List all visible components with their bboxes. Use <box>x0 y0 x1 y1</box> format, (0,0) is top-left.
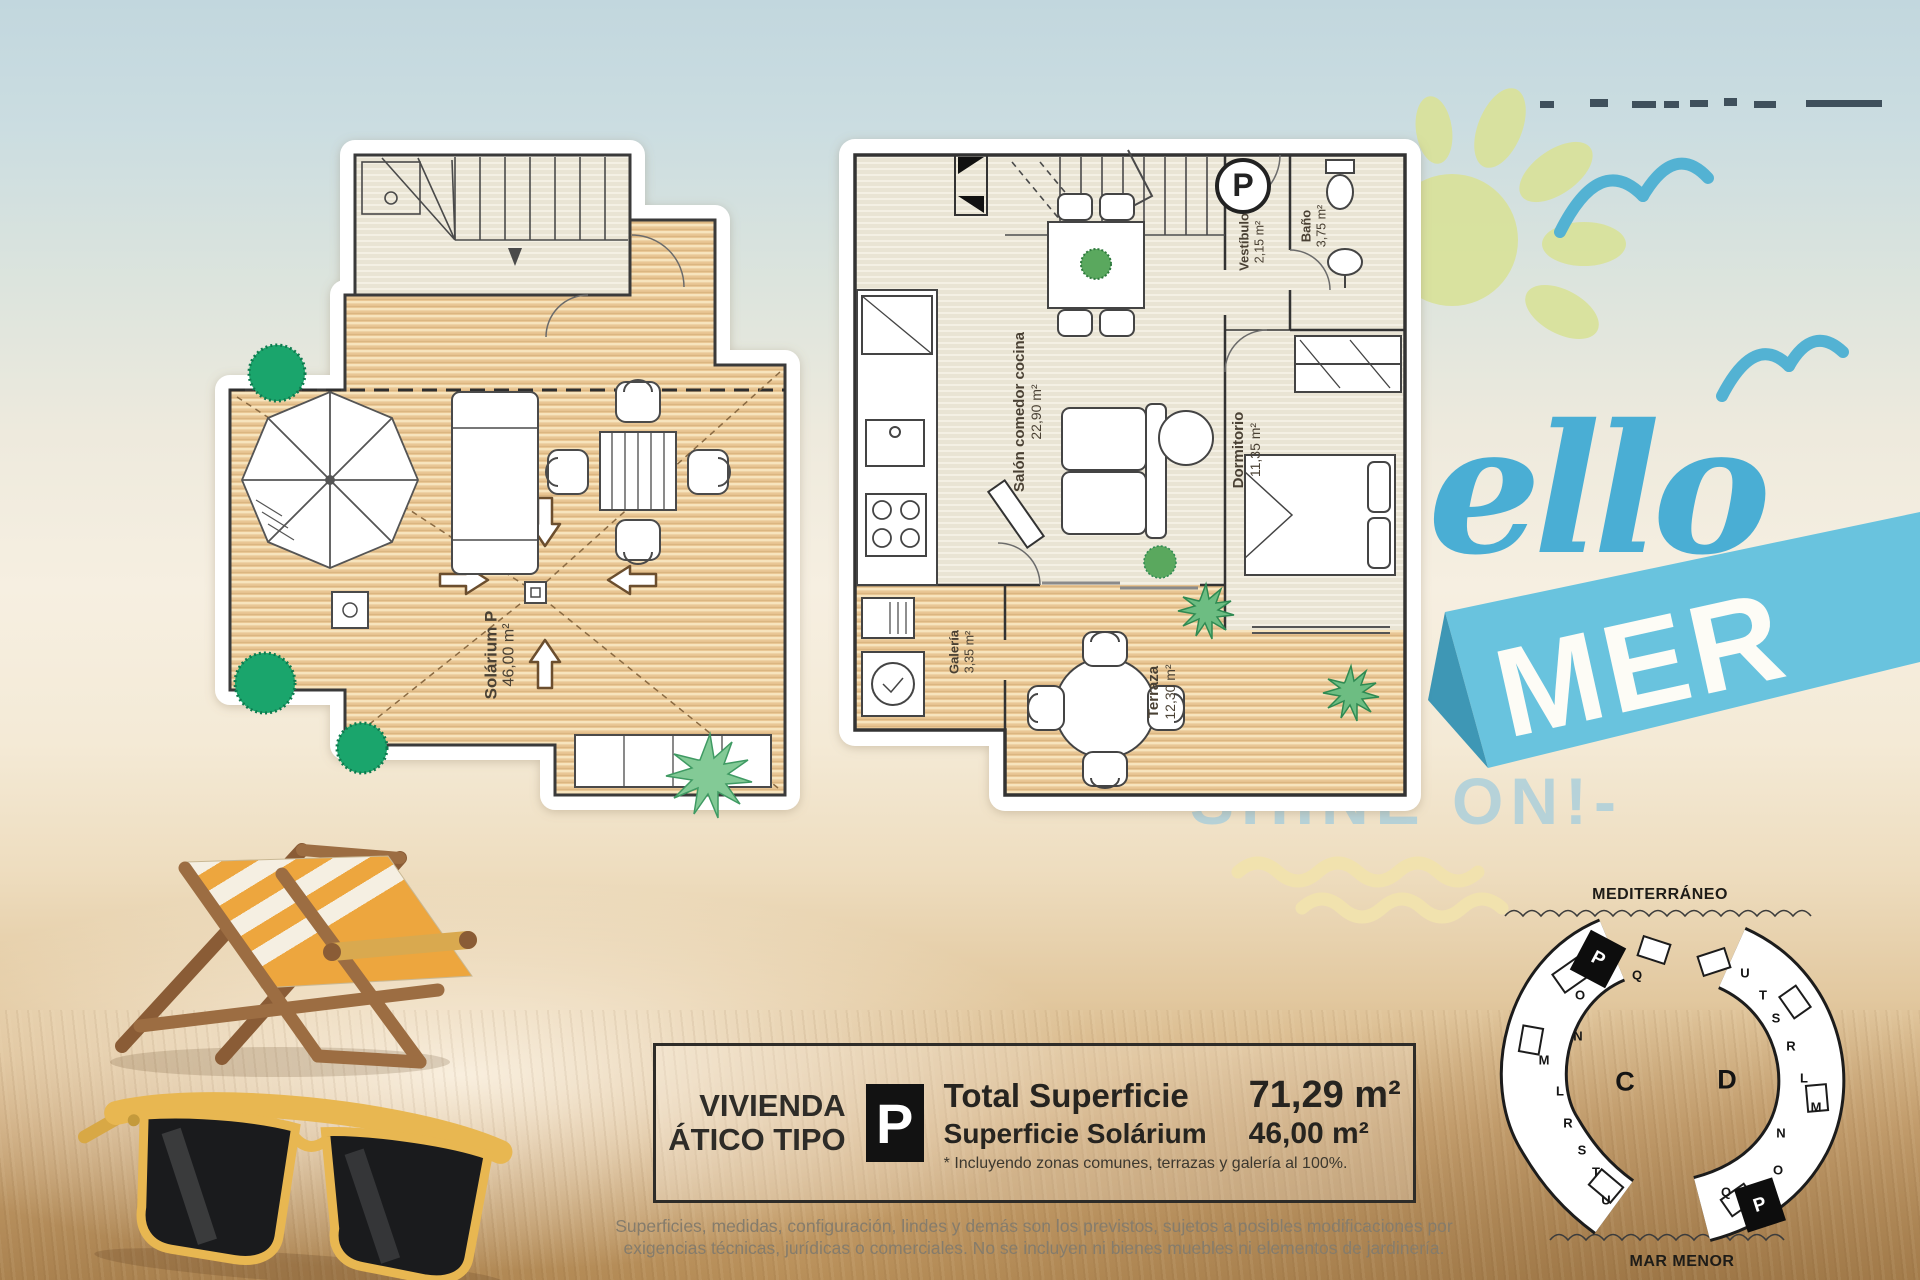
site-unit-c-u: U <box>1601 1193 1610 1208</box>
solarium-surface-label: Superficie Solárium <box>944 1118 1249 1150</box>
site-unit-c-l: L <box>1556 1084 1564 1099</box>
block-d-label: D <box>1717 1065 1737 1096</box>
unit-title: VIVIENDA ÁTICO TIPO <box>668 1089 845 1157</box>
site-unit-d-t: T <box>1759 988 1767 1003</box>
site-unit-d-l: L <box>1800 1071 1808 1086</box>
total-surface-value: 71,29 m² <box>1249 1074 1401 1117</box>
site-unit-d-s: S <box>1772 1011 1781 1026</box>
sunglasses-photo <box>75 1093 514 1280</box>
room-label-solarium: Solárium P 46,00 m² <box>482 611 519 700</box>
room-label-dormitorio: Dormitorio 11,35 m² <box>1231 412 1263 489</box>
solarium-plan-detail <box>230 155 785 818</box>
sun-icon <box>1386 81 1626 350</box>
room-label-vestibulo: Vestíbulo 2,15 m² <box>1238 213 1267 271</box>
site-unit-d-n: N <box>1776 1126 1785 1141</box>
site-unit-d-q: Q <box>1721 1185 1731 1200</box>
logo-remnant-dashes <box>1540 98 1882 108</box>
site-unit-d-m: M <box>1811 1100 1822 1115</box>
site-unit-c-q: Q <box>1632 968 1642 983</box>
site-unit-c-n: N <box>1573 1029 1582 1044</box>
legal-disclaimer: Superficies, medidas, configuración, lin… <box>534 1216 1534 1260</box>
block-c-label: C <box>1615 1067 1635 1098</box>
room-label-salon: Salón comedor cocina 22,90 m² <box>1012 332 1044 492</box>
site-unit-c-t: T <box>1592 1165 1600 1180</box>
room-label-bano: Baño 3,75 m² <box>1300 205 1329 247</box>
site-unit-c-m: M <box>1539 1053 1550 1068</box>
surface-note: * Incluyendo zonas comunes, terrazas y g… <box>944 1155 1401 1173</box>
room-label-terraza: Terraza 12,30 m² <box>1146 664 1178 719</box>
brochure-page: ello MER SHINE ON!- <box>0 0 1920 1280</box>
room-label-galeria: Galería 3,35 m² <box>948 630 977 674</box>
sea-label-mediterraneo: MEDITERRÁNEO <box>1510 886 1810 904</box>
surface-metrics: Total Superficie 71,29 m² Superficie Sol… <box>944 1074 1401 1173</box>
site-unit-d-o: O <box>1773 1163 1783 1178</box>
site-unit-c-s: S <box>1578 1143 1587 1158</box>
site-map-drawing <box>1505 911 1828 1241</box>
site-unit-c-o: O <box>1575 988 1585 1003</box>
solarium-surface-value: 46,00 m² <box>1249 1117 1369 1151</box>
wave-doodles <box>1238 863 1502 917</box>
site-unit-d-r: R <box>1786 1039 1795 1054</box>
deck-chair-photo <box>110 850 477 1077</box>
summary-box: VIVIENDA ÁTICO TIPO P Total Superficie 7… <box>653 1043 1416 1203</box>
sea-label-mar-menor: MAR MENOR <box>1532 1253 1832 1271</box>
site-unit-c-r: R <box>1563 1116 1572 1131</box>
parking-symbol: P <box>1232 167 1253 204</box>
site-unit-d-u: U <box>1740 966 1749 981</box>
unit-type-badge: P <box>866 1084 924 1162</box>
total-surface-label: Total Superficie <box>944 1077 1249 1115</box>
bird-icons <box>1560 164 1843 396</box>
